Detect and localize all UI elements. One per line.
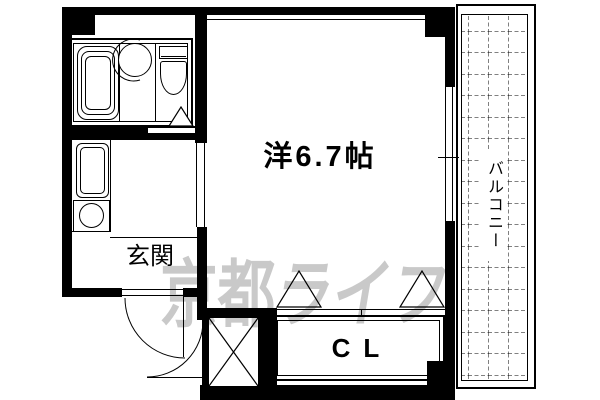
- entry-alcove-bottom-line: [147, 377, 204, 378]
- agency-watermark: 京都ライフ: [160, 258, 449, 332]
- balcony-label: バルコニー: [481, 149, 505, 261]
- wall-genkan-bottom: [62, 288, 122, 297]
- stove-burner: [79, 203, 104, 228]
- bathroom-door-threshold: [148, 127, 195, 134]
- genkan-step-line: [110, 237, 197, 238]
- watermark-part1: 京都: [160, 253, 275, 336]
- toilet-tank-line: [161, 56, 186, 57]
- floor-plan: 洋6.7帖 玄関 CL バルコニー 京都ライフ: [0, 0, 600, 400]
- wash-basin: [118, 43, 152, 77]
- room-size-label: 洋6.7帖: [228, 140, 412, 174]
- bathtub-rim-inner: [85, 56, 111, 110]
- wall-top: [62, 7, 453, 15]
- balcony-window: [445, 87, 453, 221]
- wall-middle-upper: [195, 7, 207, 143]
- kitchen-counter-line-v: [110, 140, 111, 232]
- closet-label: CL: [312, 333, 412, 363]
- kitchen-sink-inner: [80, 147, 105, 194]
- toilet-tank: [159, 46, 188, 59]
- top-wall-inner-line: [207, 19, 425, 20]
- watermark-part2: ライフ: [269, 258, 454, 332]
- wall-right-upper: [445, 7, 455, 87]
- room-doorway: [196, 143, 205, 227]
- bathroom-divider-right: [155, 43, 156, 122]
- wall-corner-top-left: [62, 7, 95, 35]
